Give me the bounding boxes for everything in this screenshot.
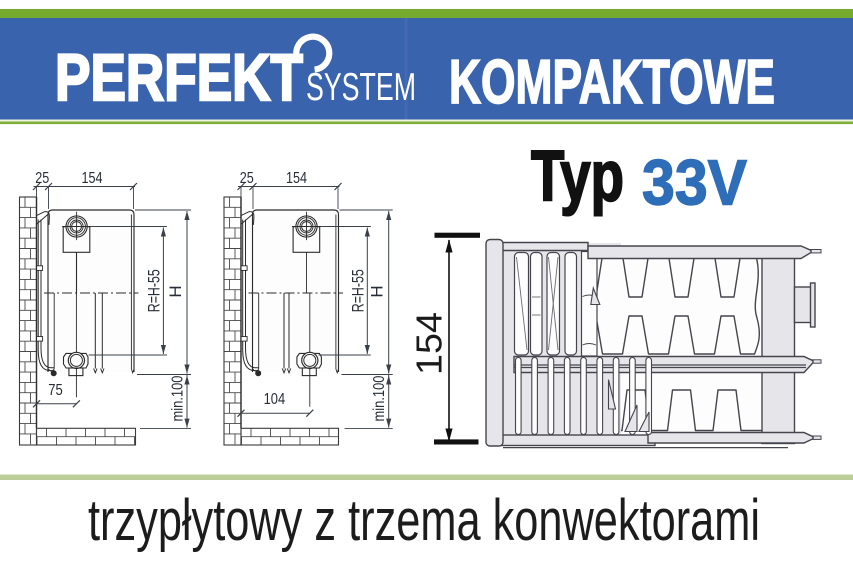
svg-text:trzypłytowy z trzema konwektor: trzypłytowy z trzema konwektorami: [88, 488, 760, 553]
svg-text:154: 154: [286, 170, 307, 187]
svg-text:min.100: min.100: [170, 375, 187, 421]
svg-text:154: 154: [82, 170, 103, 187]
svg-text:H: H: [368, 285, 387, 297]
svg-text:Typ: Typ: [531, 138, 624, 217]
svg-text:25: 25: [35, 170, 49, 187]
svg-text:SYSTEM: SYSTEM: [306, 66, 416, 109]
svg-text:33V: 33V: [642, 147, 747, 219]
svg-text:KOMPAKTOWE: KOMPAKTOWE: [449, 48, 775, 117]
svg-text:R=H-55: R=H-55: [349, 269, 367, 312]
svg-text:H: H: [166, 285, 185, 297]
svg-text:R=H-55: R=H-55: [145, 269, 163, 312]
svg-text:104: 104: [264, 391, 286, 408]
svg-text:75: 75: [48, 382, 63, 399]
svg-text:PERFEKT: PERFEKT: [55, 40, 303, 114]
svg-text:154: 154: [409, 312, 450, 375]
svg-text:25: 25: [240, 170, 254, 187]
svg-text:min.100: min.100: [371, 375, 388, 421]
